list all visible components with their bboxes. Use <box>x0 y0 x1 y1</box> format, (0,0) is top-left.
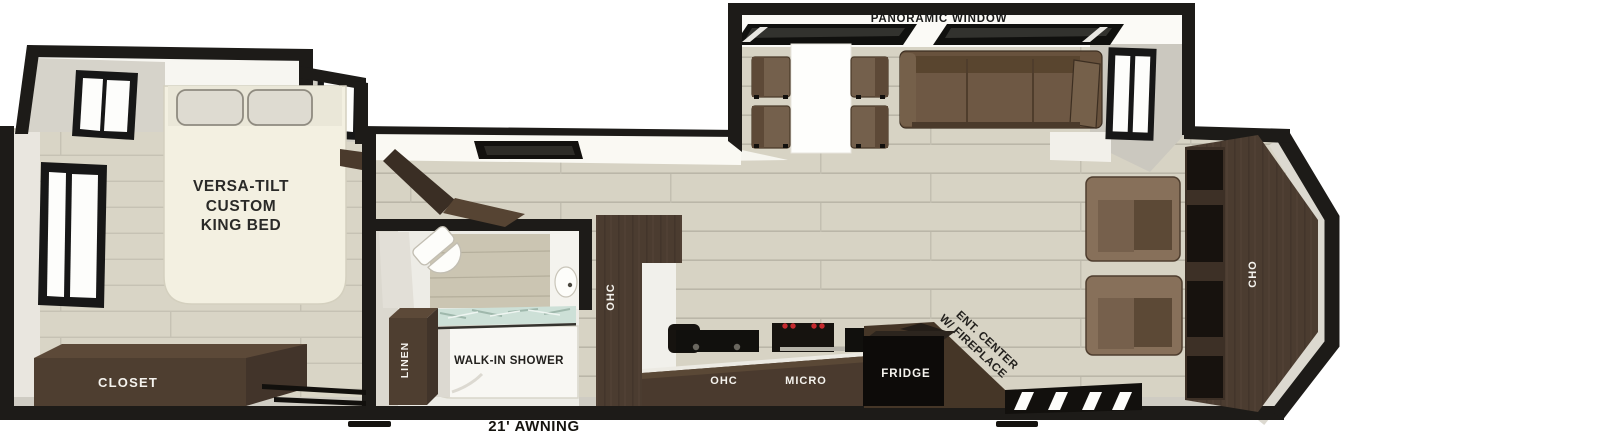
svg-text:OHC: OHC <box>605 283 617 310</box>
svg-text:CLOSET: CLOSET <box>98 375 158 390</box>
svg-text:PANORAMIC WINDOW: PANORAMIC WINDOW <box>871 13 1008 25</box>
svg-text:CHO: CHO <box>1247 260 1259 287</box>
svg-text:OHC: OHC <box>710 375 737 387</box>
svg-text:WALK-IN SHOWER: WALK-IN SHOWER <box>454 355 564 367</box>
svg-text:KING BED: KING BED <box>201 217 282 234</box>
svg-text:FRIDGE: FRIDGE <box>881 368 930 380</box>
svg-text:21' AWNING: 21' AWNING <box>488 418 580 434</box>
svg-text:CUSTOM: CUSTOM <box>206 198 276 215</box>
svg-text:LINEN: LINEN <box>399 342 411 379</box>
svg-text:VERSA-TILT: VERSA-TILT <box>193 178 289 195</box>
svg-text:MICRO: MICRO <box>785 375 827 387</box>
